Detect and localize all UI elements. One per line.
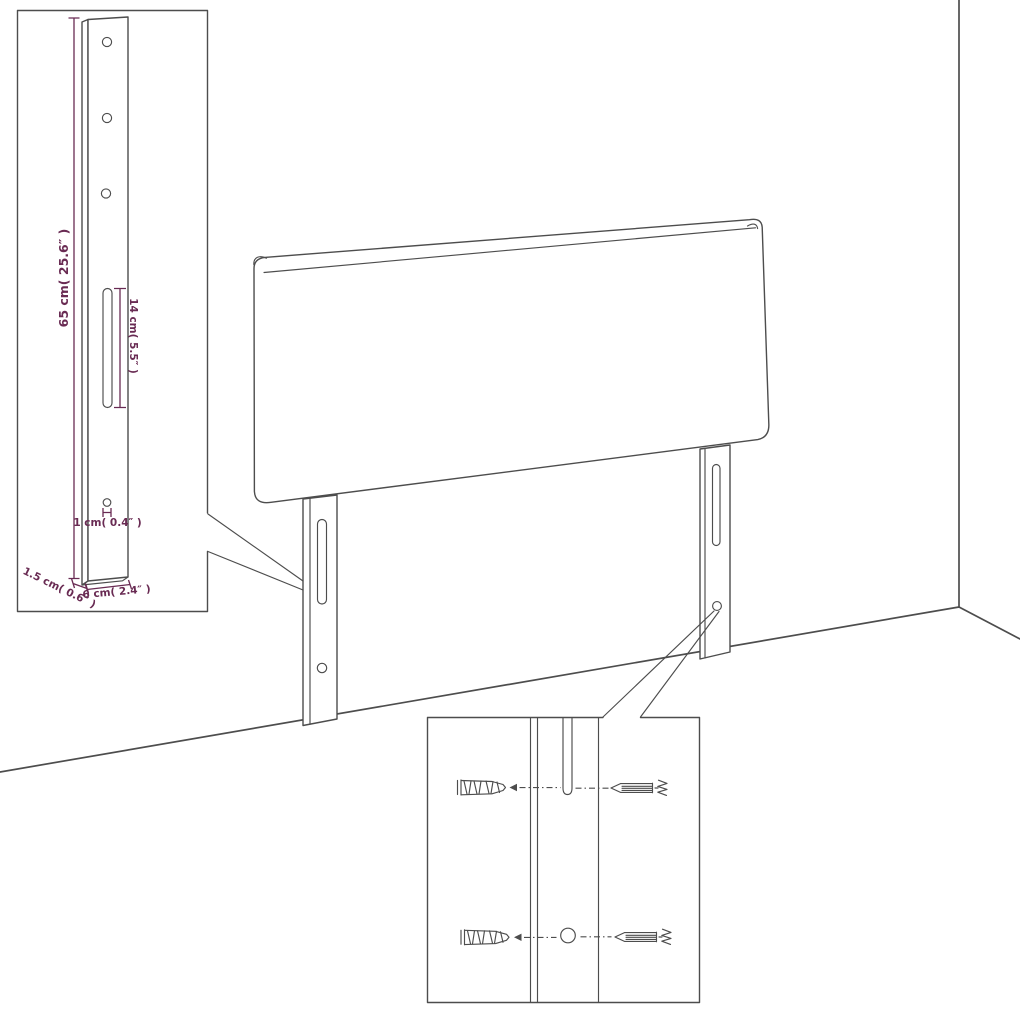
post-closeup-edges: [531, 718, 599, 1002]
hardware-detail-leader-right: [641, 612, 720, 718]
headboard-assembly-diagram: 65 cm( 25.6″ ) 14 cm( 5.5″ ) 1 cm( 0.4″ …: [0, 0, 1020, 1020]
slot-dimension-label: 14 cm( 5.5″ ): [127, 298, 139, 374]
headboard-panel: [254, 219, 769, 502]
headboard-left-leg: [303, 495, 337, 726]
left-leg-body: [303, 495, 337, 726]
floor-edge-left-line: [0, 607, 959, 772]
floor-edge-right-line: [959, 607, 1020, 639]
diagram-page: 65 cm( 25.6″ ) 14 cm( 5.5″ ) 1 cm( 0.4″ …: [0, 0, 1020, 1020]
hardware-detail-post: [531, 718, 599, 1002]
hardware-detail-leader-left: [603, 611, 714, 717]
arrow-left-top: [510, 784, 518, 791]
post-closeup-slot: [563, 718, 572, 795]
screw-top: [611, 780, 667, 795]
hole-dimension-label: 1 cm( 0.4″ ): [73, 517, 141, 529]
callout-leaders: [208, 514, 719, 717]
headboard-right-leg: [700, 445, 730, 659]
post-front-face: [88, 17, 128, 581]
panel-face: [254, 219, 769, 502]
leg-detail-post: [82, 17, 128, 585]
hardware-detail-inset: [428, 718, 700, 1003]
screw-bottom: [615, 929, 671, 944]
arrow-left-bottom: [514, 934, 522, 941]
width-dimension-label: 6 cm( 2.4″ ): [82, 583, 151, 601]
post-closeup-hole: [561, 928, 576, 943]
leg-detail-inset: 65 cm( 25.6″ ) 14 cm( 5.5″ ) 1 cm( 0.4″ …: [18, 11, 208, 612]
wall-plug-bottom: [461, 930, 509, 945]
post-side-face: [82, 20, 88, 586]
wall-plug-top: [458, 780, 506, 795]
height-dimension-label: 65 cm( 25.6″ ): [56, 229, 71, 328]
hardware-row-slot: [458, 780, 668, 795]
